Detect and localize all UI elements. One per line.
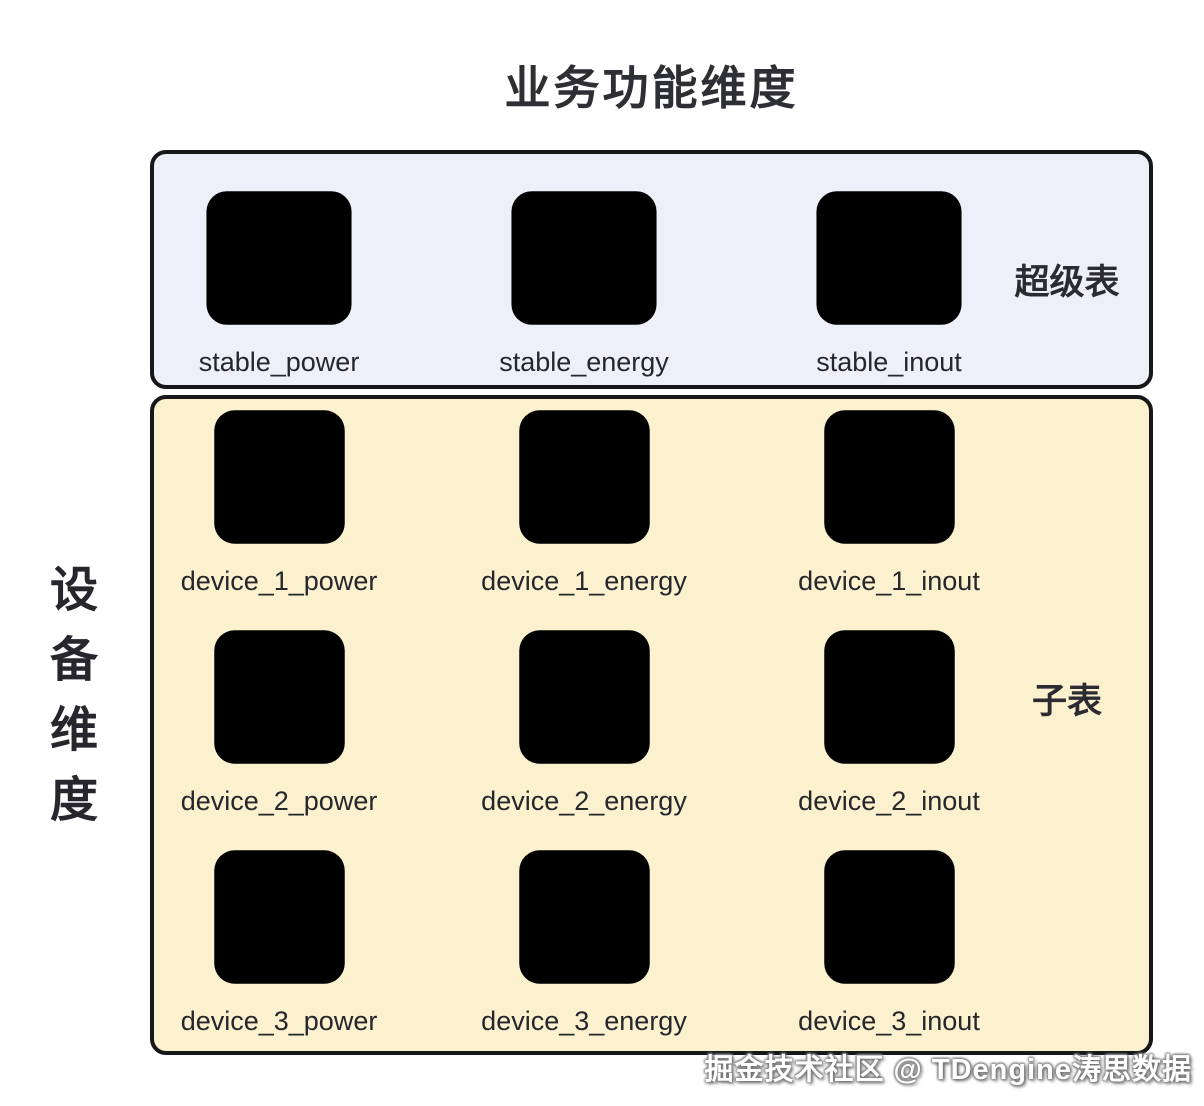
sub-table-icon — [512, 843, 657, 991]
table-cell-device-3-power: device_3_power — [199, 843, 359, 1039]
sub-table-icon — [817, 403, 962, 551]
sub-table-icon — [817, 843, 962, 991]
table-name: device_3_inout — [798, 1003, 980, 1039]
axis-char: 度 — [44, 766, 104, 836]
table-name: device_3_power — [181, 1003, 378, 1039]
super-table-icon — [199, 184, 359, 332]
sub-table-icon — [207, 843, 352, 991]
sub-table-icon — [512, 623, 657, 771]
sub-table-icon — [207, 623, 352, 771]
table-cell-device-3-inout: device_3_inout — [809, 843, 969, 1039]
table-cell-device-2-energy: device_2_energy — [504, 623, 664, 819]
axis-char: 维 — [44, 696, 104, 766]
table-cell-device-2-inout: device_2_inout — [809, 623, 969, 819]
super-table-row: stable_power stable_energy stable_inout — [199, 184, 1149, 380]
table-name: device_2_power — [181, 783, 378, 819]
super-table-panel: stable_power stable_energy stable_inout … — [150, 150, 1153, 389]
sub-table-panel: device_1_power device_1_energy device_1_… — [150, 395, 1153, 1055]
watermark: 掘金技术社区 @ TDengine涛思数据 — [704, 1046, 1192, 1088]
table-name: device_1_energy — [481, 563, 687, 599]
axis-char: 设 — [44, 556, 104, 626]
table-cell-device-1-power: device_1_power — [199, 403, 359, 599]
table-name: stable_power — [199, 344, 360, 380]
table-cell-device-2-power: device_2_power — [199, 623, 359, 819]
table-name: device_2_inout — [798, 783, 980, 819]
sub-table-icon — [207, 403, 352, 551]
table-name: stable_energy — [499, 344, 669, 380]
table-cell-device-1-inout: device_1_inout — [809, 403, 969, 599]
sub-table-row-device-3: device_3_power device_3_energy device_3_… — [199, 843, 1149, 1039]
table-name: device_3_energy — [481, 1003, 687, 1039]
sub-table-icon — [817, 623, 962, 771]
table-cell-stable-energy: stable_energy — [504, 184, 664, 380]
sub-table-row-device-2: device_2_power device_2_energy device_2_… — [199, 623, 1149, 819]
table-name: device_1_inout — [798, 563, 980, 599]
table-cell-device-3-energy: device_3_energy — [504, 843, 664, 1039]
super-table-icon — [809, 184, 969, 332]
super-table-icon — [504, 184, 664, 332]
sub-table-row-device-1: device_1_power device_1_energy device_1_… — [199, 403, 1149, 599]
axis-char: 备 — [44, 626, 104, 696]
table-cell-stable-power: stable_power — [199, 184, 359, 380]
device-dimension-axis-label: 设 备 维 度 — [44, 556, 104, 836]
table-cell-stable-inout: stable_inout — [809, 184, 969, 380]
table-name: device_2_energy — [481, 783, 687, 819]
super-table-section-label: 超级表 — [1011, 254, 1123, 305]
table-name: stable_inout — [816, 344, 962, 380]
table-cell-device-1-energy: device_1_energy — [504, 403, 664, 599]
page-title: 业务功能维度 — [150, 52, 1153, 118]
sub-table-icon — [512, 403, 657, 551]
diagram-panels: stable_power stable_energy stable_inout … — [150, 150, 1153, 1055]
sub-table-section-label: 子表 — [1011, 673, 1123, 724]
table-name: device_1_power — [181, 563, 378, 599]
